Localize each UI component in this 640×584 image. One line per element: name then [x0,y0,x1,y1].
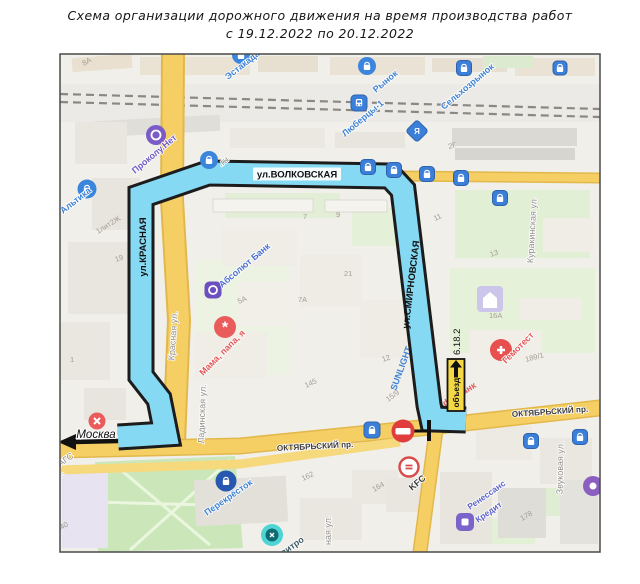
bnum: 21 [344,269,352,278]
scheme-title-line1: Схема организации дорожного движения на … [0,8,640,23]
map-canvas: Красная ул. Ладинская ул. Куракинская ул… [0,0,640,584]
shop-icon [200,151,218,169]
train-station-icon [351,95,367,111]
moscow-arrow-shaft [74,441,118,442]
bnum: 1 [70,355,74,364]
route-label-krasnaya: ул.КРАСНАЯ [138,217,149,276]
traffic-scheme-page: Красная ул. Ладинская ул. Куракинская ул… [0,0,640,584]
scheme-title-line2: с 19.12.2022 по 20.12.2022 [0,26,640,41]
shop-icon [573,430,588,445]
selkhozrynok-icon [457,61,472,76]
rynok-icon [358,57,376,75]
ya-glyph: Я [414,127,420,136]
bnum: 7А [298,295,307,304]
street-label-ladinskaya: Ладинская ул. [196,384,208,444]
detour-sign: объезд [448,359,465,411]
shop-icon [420,167,435,182]
shop-icon [387,163,402,178]
kfc-icon [400,458,419,477]
shop-icon [361,160,376,175]
shop-icon [553,61,567,75]
poi-red-icon [89,413,106,430]
renessans-icon [456,513,474,531]
school-16a-icon [477,286,503,312]
shop-icon [454,171,469,186]
street-label-naya: ная ул. [323,516,333,545]
detour-sign-label: объезд [451,377,461,408]
bnum: 7 [303,212,307,221]
route-label-volkovskaya: ул.ВОЛКОВСКАЯ [257,170,337,181]
invitro-icon [261,524,283,546]
bnum: 16А [489,311,502,320]
bnum: 9 [336,210,340,219]
detour-sign-code: 6.18.2 [452,329,463,355]
svg-text:*: * [222,320,229,337]
street-label-zvukovaya: Звуковая ул. [555,442,566,495]
moscow-label: Москва [76,429,115,441]
shop-icon [524,434,539,449]
shop-icon [493,191,508,206]
shop-icon [364,422,380,438]
